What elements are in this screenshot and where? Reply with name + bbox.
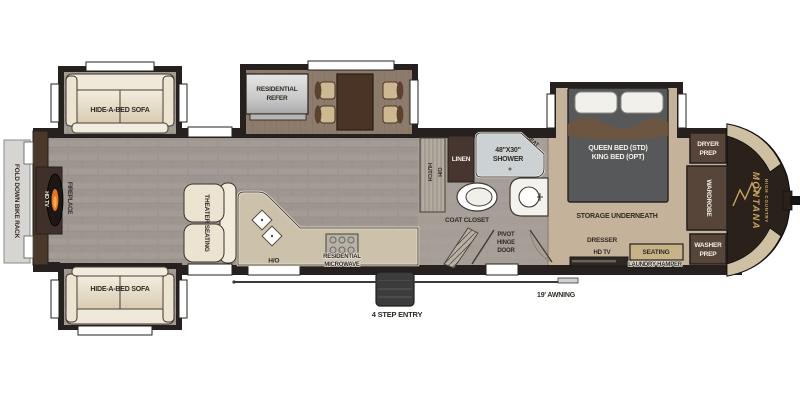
brand-label: MONTANA bbox=[750, 172, 761, 230]
coat-closet-label: COAT CLOSET bbox=[445, 217, 489, 224]
linen-label: LINEN bbox=[452, 156, 471, 163]
washer-label-2: PREP bbox=[700, 251, 718, 258]
shower: 48"X30" SHOWER SEAT bbox=[476, 133, 544, 177]
toilet bbox=[457, 183, 497, 211]
dryer-prep-cabinet bbox=[690, 133, 726, 163]
vanity-sink bbox=[510, 178, 548, 216]
theater-seating-label: THEATER SEATING bbox=[203, 194, 210, 252]
refer-label-2: REFER bbox=[266, 95, 288, 102]
entry-steps: 4 STEP ENTRY bbox=[372, 272, 423, 319]
seating-label: SEATING bbox=[642, 249, 669, 256]
pillow bbox=[621, 92, 663, 113]
pivot-label-1: PIVOT bbox=[497, 232, 515, 238]
sink-icon bbox=[519, 187, 539, 207]
brand-sub-label: HIGH COUNTRY bbox=[764, 179, 769, 223]
bike-rack: FOLD DOWN BIKE RACK bbox=[4, 140, 33, 263]
bed-label-1: QUEEN BED (STD) bbox=[588, 145, 647, 152]
laundry-hamper-label: LAUNDRY HAMPER bbox=[628, 262, 683, 268]
sofa-bottom-label: HIDE-A-BED SOFA bbox=[90, 286, 149, 293]
slide-sofa-top: HIDE-A-BED SOFA bbox=[51, 62, 187, 138]
dresser-label: DRESSER bbox=[587, 237, 618, 244]
bed-label-2: KING BED (OPT) bbox=[592, 154, 644, 161]
bike-rack-label: FOLD DOWN BIKE RACK bbox=[13, 164, 20, 239]
washer-label-1: WASHER bbox=[694, 242, 722, 249]
oh-hutch-label: O/H bbox=[436, 167, 442, 176]
slide-kitchen: RESIDENTIAL REFER bbox=[240, 61, 418, 138]
range-icon bbox=[326, 234, 358, 256]
microwave-label-2: MICROWAVE bbox=[324, 262, 360, 268]
step-entry-label: 4 STEP ENTRY bbox=[372, 310, 423, 319]
oh-kitchen-label: O/H bbox=[268, 256, 279, 263]
hd-tv-living-label: HD TV bbox=[43, 191, 49, 207]
dryer-label-2: PREP bbox=[700, 150, 718, 157]
wardrobe-label: WARDROBE bbox=[705, 179, 712, 217]
shower-label-2: SHOWER bbox=[493, 156, 523, 163]
hd-tv-bedroom-label: HD TV bbox=[593, 250, 610, 256]
storage-label: STORAGE UNDERNEATH bbox=[576, 213, 657, 220]
entry-door-opening bbox=[486, 264, 518, 275]
slide-bedroom: QUEEN BED (STD) KING BED (OPT) STORAGE U… bbox=[547, 82, 686, 220]
dryer-label-1: DRYER bbox=[697, 141, 719, 148]
window bbox=[188, 264, 232, 275]
awning-label: 19' AWNING bbox=[537, 292, 576, 299]
microwave-label-1: RESIDENTIAL bbox=[323, 254, 361, 260]
fireplace-label: FIREPLACE bbox=[66, 182, 72, 214]
pillow bbox=[575, 92, 617, 113]
kingpin-hitch bbox=[783, 191, 800, 210]
front-cap: MONTANA HIGH COUNTRY bbox=[727, 124, 800, 276]
window bbox=[188, 127, 232, 137]
washer-prep-cabinet bbox=[690, 234, 726, 264]
pivot-label-2: HINGE bbox=[497, 240, 515, 246]
hutch: HUTCH O/H bbox=[420, 138, 445, 212]
hutch-label: HUTCH bbox=[426, 163, 432, 181]
bed: QUEEN BED (STD) KING BED (OPT) bbox=[568, 88, 668, 202]
pivot-label-3: DOOR bbox=[497, 248, 515, 254]
floor-plan: FOLD DOWN BIKE RACK HD TV FIREPLACE HIDE… bbox=[0, 0, 800, 400]
dinette-table bbox=[337, 74, 373, 130]
front-closets: DRYER PREP WARDROBE WASHER PREP bbox=[687, 133, 727, 264]
shower-label-1: 48"X30" bbox=[495, 147, 520, 154]
slide-sofa-bottom: HIDE-A-BED SOFA bbox=[51, 263, 187, 335]
refer-label-1: RESIDENTIAL bbox=[256, 86, 297, 93]
refrigerator bbox=[246, 74, 308, 114]
sofa-top-label: HIDE-A-BED SOFA bbox=[90, 107, 149, 114]
